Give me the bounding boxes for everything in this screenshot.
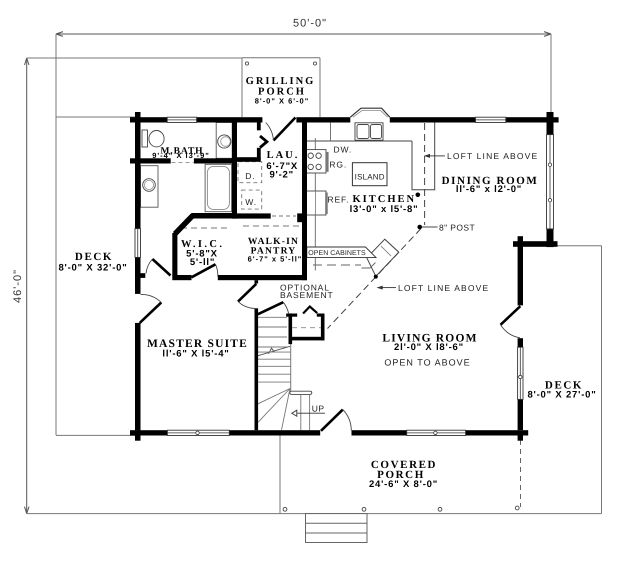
svg-text:OPEN CABINETS: OPEN CABINETS <box>308 250 366 257</box>
svg-text:DECK: DECK <box>75 251 113 263</box>
svg-text:RG.: RG. <box>329 160 347 170</box>
svg-text:46'-0": 46'-0" <box>12 269 24 303</box>
svg-text:REF.: REF. <box>328 194 350 204</box>
svg-text:LOFT LINE ABOVE: LOFT LINE ABOVE <box>398 283 489 293</box>
svg-text:50'-0": 50'-0" <box>293 18 327 30</box>
svg-text:ll'-6" x l2'-0": ll'-6" x l2'-0" <box>456 184 522 195</box>
svg-text:5'-ll": 5'-ll" <box>190 257 215 268</box>
svg-text:WALK-IN: WALK-IN <box>248 237 299 247</box>
svg-text:8'-0" X 6'-0": 8'-0" X 6'-0" <box>255 97 310 106</box>
svg-text:6'-7" x 5'-ll": 6'-7" x 5'-ll" <box>248 254 303 263</box>
svg-text:ISLAND: ISLAND <box>355 173 385 182</box>
svg-text:8'-0" X 32'-0": 8'-0" X 32'-0" <box>58 263 127 274</box>
svg-text:UP: UP <box>312 404 325 414</box>
svg-text:BASEMENT: BASEMENT <box>280 290 334 300</box>
svg-text:8'-0" X 27'-0": 8'-0" X 27'-0" <box>527 389 596 400</box>
svg-text:9'-2": 9'-2" <box>269 170 294 181</box>
svg-text:24'-6" X 8'-0": 24'-6" X 8'-0" <box>369 479 438 490</box>
svg-text:DW.: DW. <box>334 145 353 155</box>
svg-text:ll'-6" X l5'-4": ll'-6" X l5'-4" <box>162 349 229 360</box>
svg-text:D.: D. <box>245 171 255 181</box>
svg-text:OPEN TO ABOVE: OPEN TO ABOVE <box>384 357 470 367</box>
svg-text:l3'-0" x l5'-8": l3'-0" x l5'-8" <box>350 204 419 215</box>
svg-text:W.: W. <box>245 197 257 207</box>
svg-text:GRILLING: GRILLING <box>246 76 316 87</box>
svg-text:2l'-0" X l8'-6": 2l'-0" X l8'-6" <box>394 342 464 353</box>
svg-text:LOFT LINE ABOVE: LOFT LINE ABOVE <box>447 151 538 161</box>
svg-text:9'-4" X l3'-9": 9'-4" X l3'-9" <box>152 151 210 160</box>
svg-text:LAU.: LAU. <box>267 150 300 161</box>
svg-text:8" POST: 8" POST <box>439 223 475 233</box>
